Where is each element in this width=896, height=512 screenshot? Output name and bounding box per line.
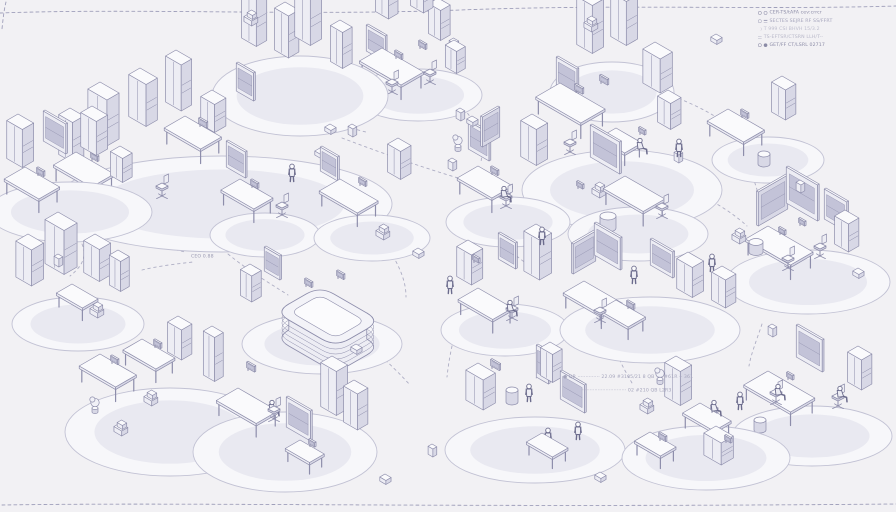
cabinet: [166, 50, 192, 111]
island-service-counter: [445, 342, 625, 483]
monitor: [419, 40, 427, 50]
monitor: [491, 359, 501, 371]
legend-ring-icon: [758, 11, 762, 15]
legend-row: TS-EFTSR/CTSRN LLH/T--: [758, 33, 829, 41]
bin: [456, 108, 465, 121]
legend-ring-icon: [764, 11, 768, 15]
monitor: [305, 278, 313, 288]
person-standing: [631, 266, 638, 283]
drum: [758, 151, 770, 167]
cabinet: [835, 210, 859, 252]
monitor: [395, 50, 403, 60]
cabinet: [203, 326, 223, 382]
isometric-office-illustration: CER-TS/tAFA cev:crrcrSECTES SEJRE RF SS/…: [0, 0, 896, 512]
cabinet: [344, 380, 368, 430]
monitor: [741, 109, 749, 119]
cabinet: [109, 250, 129, 292]
legend-row: CER-TS/tAFA cev:crrcr: [758, 9, 829, 17]
monitor: [799, 217, 806, 226]
cabinet: [848, 346, 872, 390]
office-chair: [564, 130, 577, 155]
monitor: [111, 355, 119, 365]
legend-paren-icon: [758, 27, 762, 31]
annotation-line1: ● QR ·············· 22.09 #3105/21 8 QB …: [563, 370, 693, 384]
drum: [506, 387, 518, 405]
monitor: [779, 226, 786, 235]
cabinet: [16, 234, 44, 286]
legend-ring-icon: [758, 43, 762, 47]
island-office-pod-left: [441, 224, 569, 356]
screen-wall: [481, 106, 500, 147]
cabinet: [677, 252, 704, 298]
cabinet: [388, 138, 411, 180]
cabinet: [611, 0, 638, 46]
bin: [54, 254, 63, 267]
cabinet: [110, 146, 132, 183]
cabinet: [772, 76, 796, 120]
cabinet: [129, 68, 158, 127]
person-standing: [737, 392, 744, 409]
box: [711, 34, 722, 45]
legend-row-text: GET/FF CT/LSRL 02717: [769, 41, 824, 49]
cabinet: [466, 363, 495, 410]
bin: [428, 444, 437, 457]
plant: [453, 135, 462, 152]
cabinet: [168, 316, 192, 360]
cabinet: [524, 224, 552, 280]
person-standing: [709, 254, 716, 271]
cabinet: [7, 114, 34, 168]
legend-dot-icon: [764, 43, 768, 47]
monitor: [491, 166, 499, 176]
monitor: [337, 270, 345, 280]
legend-ring-icon: [758, 19, 762, 23]
legend-bars-icon: [764, 20, 768, 23]
legend-row-text: T 999 CSI BHVH 15/3.2: [764, 25, 820, 33]
cabinet: [643, 42, 672, 93]
drum: [754, 417, 766, 433]
cabinet: [295, 0, 322, 46]
cabinet: [540, 342, 562, 383]
cabinet: [521, 114, 548, 166]
bin: [448, 158, 457, 171]
cabinet: [84, 234, 111, 282]
monitor: [247, 361, 256, 372]
monitor: [787, 371, 794, 380]
island-control-room: [726, 166, 890, 314]
screen-wall: [796, 324, 824, 372]
monitor: [37, 167, 45, 177]
monitor: [639, 126, 646, 135]
cabinet: [330, 20, 352, 69]
cabinet: [81, 106, 108, 156]
island-team-pods: [560, 222, 740, 363]
drum: [749, 239, 763, 256]
legend: CER-TS/tAFA cev:crrcrSECTES SEJRE RF SS/…: [758, 9, 894, 59]
cabinet: [445, 40, 465, 74]
cabinet: [240, 264, 261, 302]
ceo-label: CEO 0.88: [191, 254, 214, 259]
legend-rows: CER-TS/tAFA cev:crrcrSECTES SEJRE RF SS/…: [758, 9, 829, 49]
box-stack: [732, 228, 746, 244]
box-stack: [640, 398, 654, 414]
legend-row: T 999 CSI BHVH 15/3.2: [758, 25, 829, 33]
person-standing: [526, 384, 533, 401]
legend-row: SECTES SEJRE RF SS/FFRT: [758, 17, 829, 25]
screen-wall: [786, 166, 819, 221]
legend-row-text: CER-TS/tAFA cev:crrcr: [769, 9, 821, 17]
annotation: ● QR ·············· 22.09 #3105/21 8 QB …: [563, 370, 693, 397]
cabinet: [712, 266, 736, 308]
island-reception: [240, 246, 402, 374]
bin: [348, 124, 357, 137]
bin: [768, 324, 777, 337]
person-standing: [447, 276, 454, 293]
legend-bars-icon: [758, 36, 762, 39]
isometric-scene: [0, 0, 896, 512]
cabinet: [658, 90, 681, 130]
island-right-desk: [707, 76, 824, 183]
legend-row-text: TS-EFTSR/CTSRN LLH/T--: [764, 33, 823, 41]
legend-row: GET/FF CT/LSRL 02717: [758, 41, 829, 49]
monitor: [154, 339, 162, 349]
annotation-line2: ···························· 02 #210 QB …: [582, 384, 693, 398]
legend-row-text: SECTES SEJRE RF SS/FFRT: [769, 17, 832, 25]
cabinet: [375, 0, 398, 19]
island-mid-desk2: [314, 138, 430, 261]
bin: [796, 180, 805, 193]
box: [380, 474, 391, 485]
